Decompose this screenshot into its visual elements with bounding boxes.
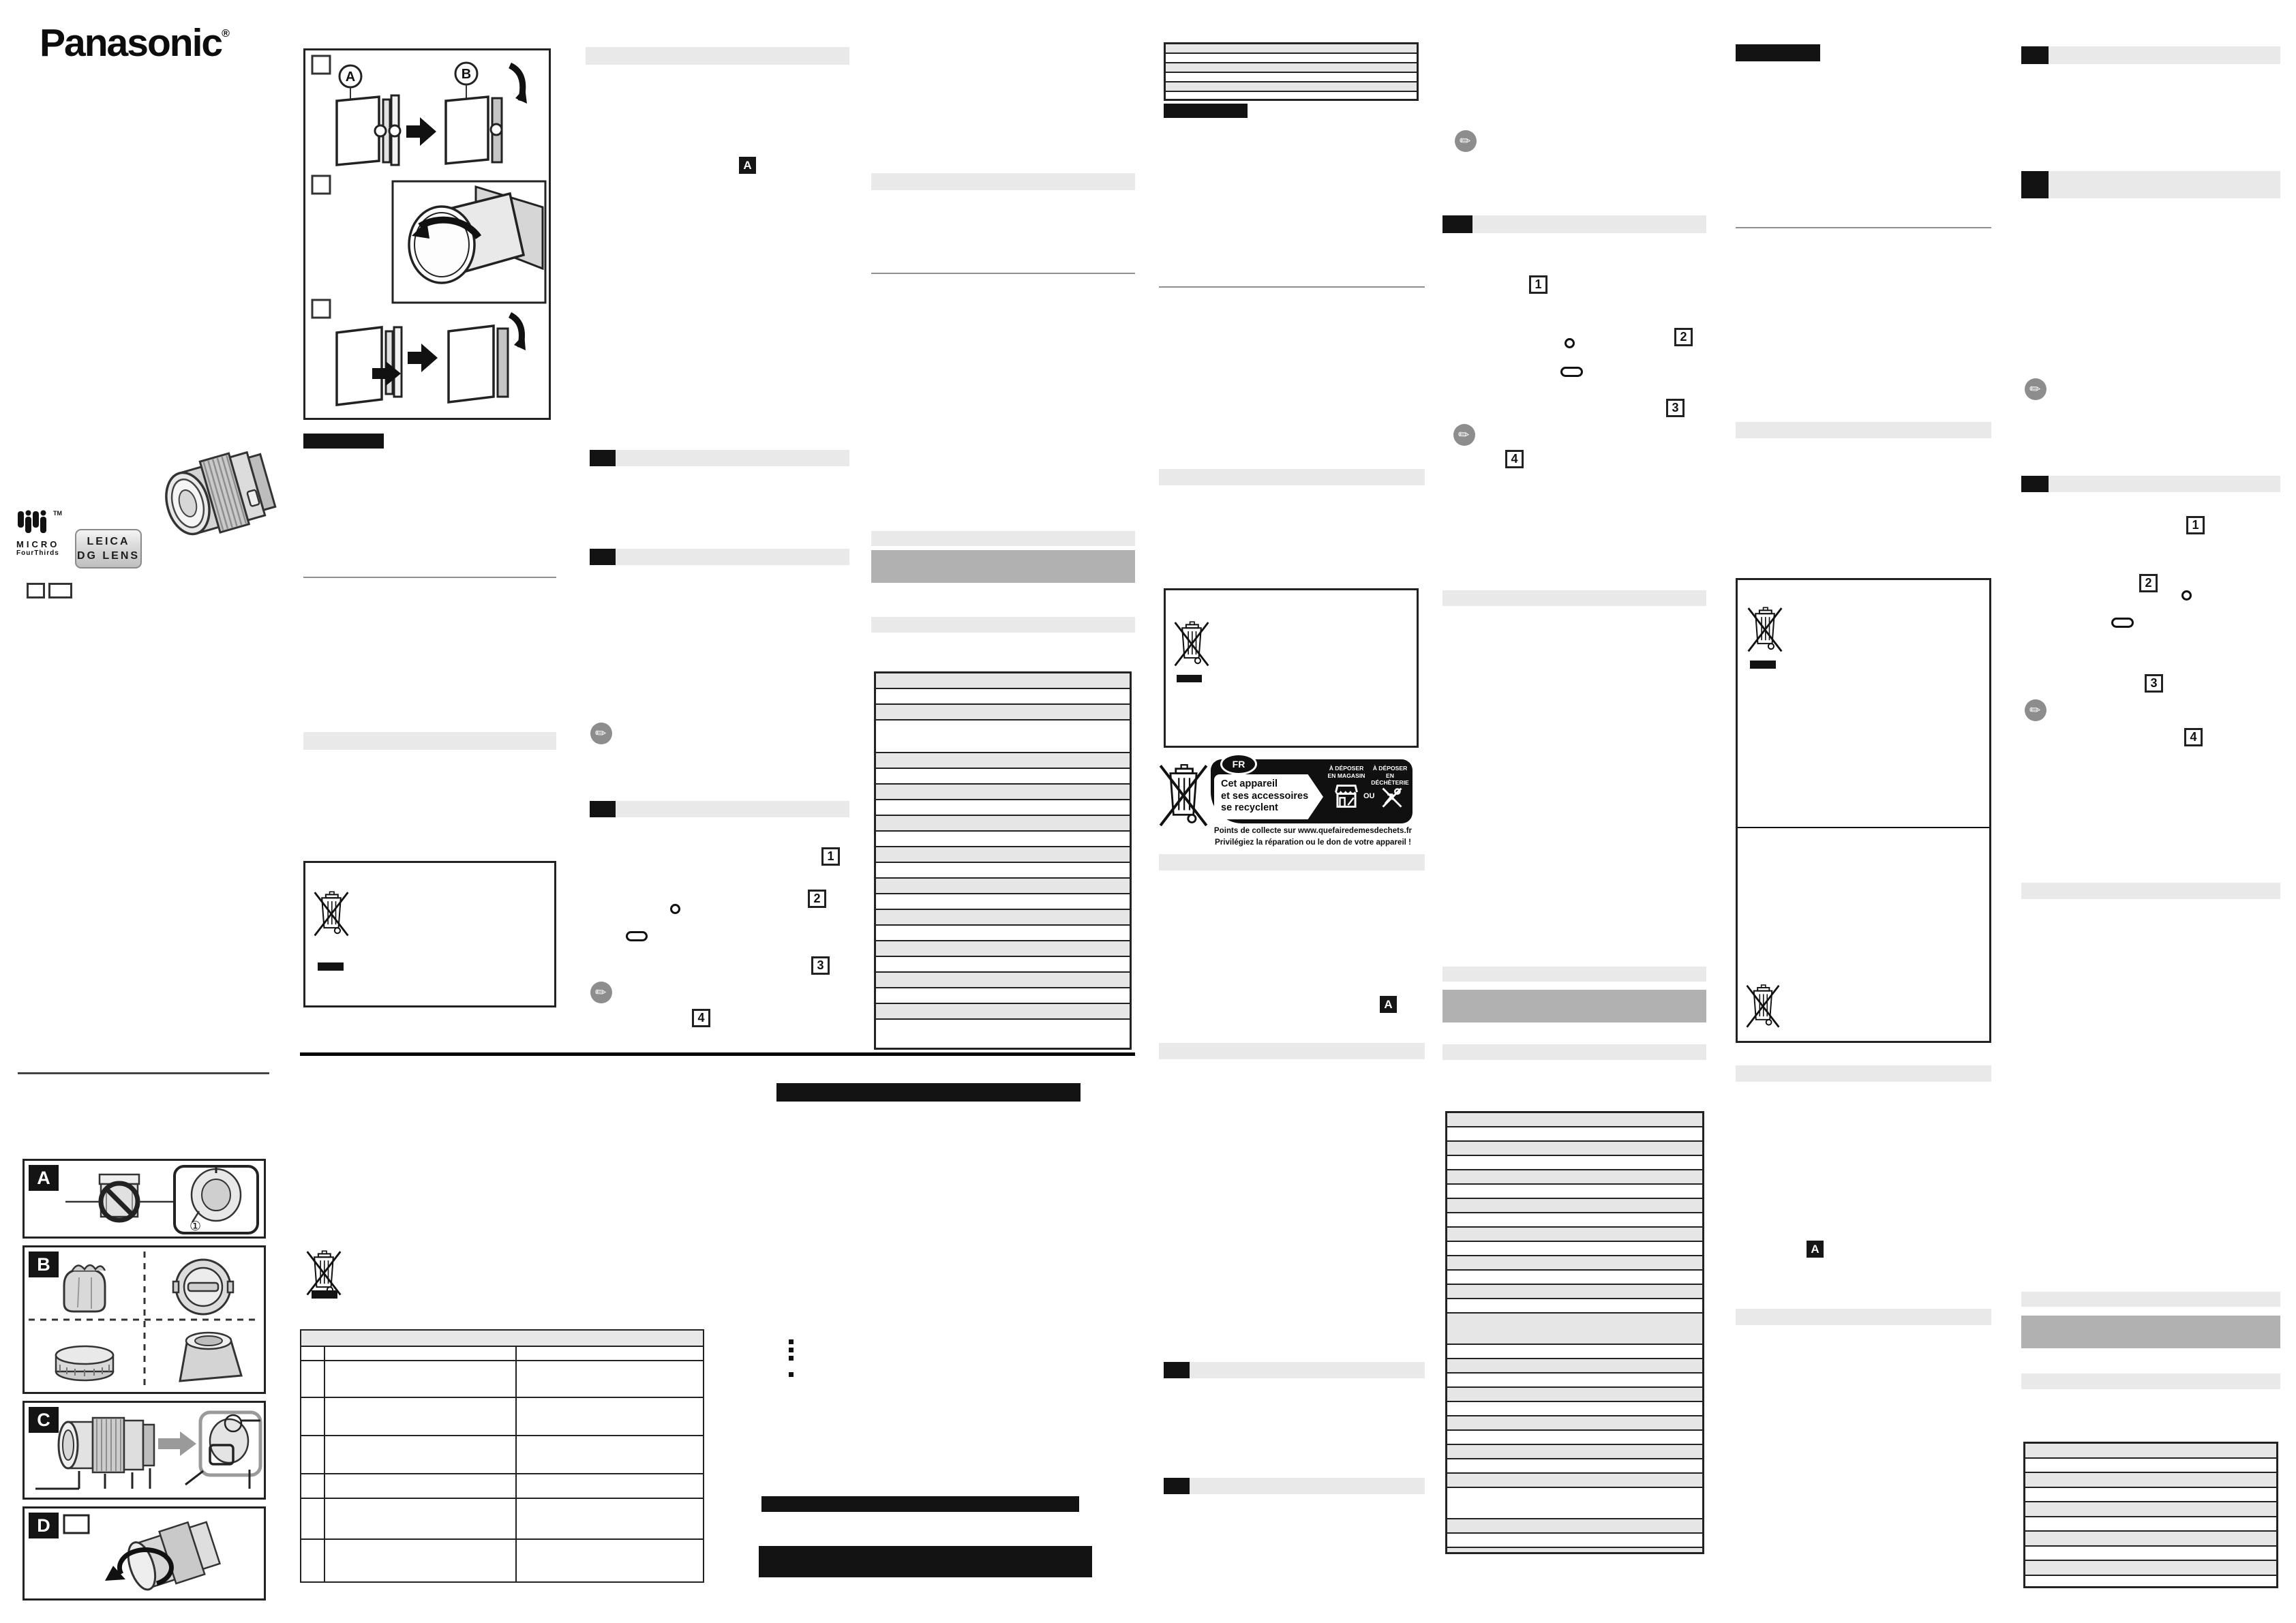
redacted-subheading-col4 xyxy=(871,550,1135,583)
redacted-heading-col8-6 xyxy=(2021,1374,2280,1389)
redacted-heading-col3-3 xyxy=(616,801,849,817)
figure-panel-a: A ① xyxy=(22,1159,266,1239)
troubleshooting-table-body xyxy=(301,1330,704,1582)
step-2-label: 2 xyxy=(1680,330,1687,344)
step-4-label: 4 xyxy=(2190,730,2196,744)
table-row xyxy=(1166,63,1417,73)
micro-fourthirds-mark-icon xyxy=(16,510,53,534)
redacted-heading-col5-4 xyxy=(1190,1362,1425,1378)
table-row xyxy=(1447,1170,1702,1185)
figure-ref-b: B xyxy=(462,67,471,82)
mft-micro-text: MICRO xyxy=(16,539,78,549)
divider-line-col2 xyxy=(303,577,556,578)
pencil-glyph: ✎ xyxy=(2026,701,2044,720)
redacted-heading-col5-3 xyxy=(1159,1043,1425,1059)
figure-a-reference: A xyxy=(1807,1241,1824,1258)
table-row xyxy=(2025,1517,2276,1532)
table-row xyxy=(876,1020,1130,1050)
triman-recycle-label: FR Cet appareil et ses accessoires se re… xyxy=(1159,758,1425,847)
dropoff1-line1: À DÉPOSER xyxy=(1324,765,1369,772)
triman-black-panel: FR Cet appareil et ses accessoires se re… xyxy=(1211,759,1413,823)
table-row xyxy=(1447,1416,1702,1431)
table-row xyxy=(2025,1547,2276,1562)
table-row xyxy=(876,832,1130,847)
heading-black-square xyxy=(2021,46,2049,64)
fr-label: FR xyxy=(1233,759,1245,770)
step-1-box: 1 xyxy=(821,847,840,866)
step-3-label: 3 xyxy=(817,958,824,973)
table-row xyxy=(876,988,1130,1004)
triman-fr-tag: FR xyxy=(1220,753,1257,775)
step-1-label: 1 xyxy=(827,849,834,864)
figure-panel-c: C xyxy=(22,1401,266,1500)
note-pencil-icon: ✎ xyxy=(1455,130,1477,152)
triman-claim-bubble: Cet appareil et ses accessoires se recyc… xyxy=(1214,774,1323,819)
brand-name: Panasonic xyxy=(40,21,222,65)
troubleshooting-table xyxy=(300,1329,704,1583)
edition-box-1 xyxy=(27,583,45,598)
table-row xyxy=(876,973,1130,988)
triman-claim-line1: Cet appareil xyxy=(1221,778,1323,791)
step-4-label: 4 xyxy=(1511,452,1517,466)
table-row xyxy=(2025,1444,2276,1459)
table-row xyxy=(2025,1502,2276,1517)
specifications-table-col8 xyxy=(2023,1442,2278,1588)
table-row xyxy=(1447,1299,1702,1314)
table-row xyxy=(1447,1548,1702,1554)
heading-black-square xyxy=(1164,1362,1190,1378)
leica-badge-line2: DG LENS xyxy=(76,549,140,564)
panel-a-label: A xyxy=(29,1165,59,1191)
table-row xyxy=(301,1539,704,1582)
table-row xyxy=(876,816,1130,832)
table-row xyxy=(1447,1285,1702,1299)
manual-page: Panasonic® xyxy=(0,0,2296,1623)
redacted-heading-col8-1 xyxy=(2049,46,2280,64)
table-row xyxy=(1447,1519,1702,1534)
warranty-black-heading-3 xyxy=(759,1546,1092,1577)
weee-bar-mark xyxy=(312,1290,337,1299)
heading-black-square xyxy=(590,549,616,565)
table-row xyxy=(1447,1127,1702,1142)
bullet-dot xyxy=(789,1348,794,1352)
step-4-label: 4 xyxy=(697,1011,704,1025)
warranty-black-heading-1 xyxy=(776,1083,1081,1102)
ref-a-label: A xyxy=(1811,1243,1819,1256)
store-icon xyxy=(1333,783,1359,810)
dechetterie-icon xyxy=(1380,784,1404,810)
table-row xyxy=(876,673,1130,689)
table-row xyxy=(2025,1488,2276,1503)
heading-black-square xyxy=(2021,476,2049,492)
redacted-heading-col6-4 xyxy=(1442,1044,1706,1060)
table-row xyxy=(876,894,1130,910)
note-pencil-icon: ✎ xyxy=(2025,699,2046,721)
focus-switch-pill-icon xyxy=(626,931,648,941)
table-row xyxy=(2025,1532,2276,1547)
bullet-dot xyxy=(789,1356,794,1361)
ref-a-label: A xyxy=(743,159,751,172)
table-row xyxy=(301,1474,704,1498)
redacted-heading-col5-1 xyxy=(1159,469,1425,485)
focus-button-circle-icon xyxy=(2181,590,2192,601)
compliance-table-col5 xyxy=(1164,42,1419,101)
table-row xyxy=(2025,1561,2276,1576)
table-row xyxy=(301,1498,704,1539)
redacted-subheading-col8 xyxy=(2021,1316,2280,1348)
table-row xyxy=(2025,1576,2276,1589)
table-row xyxy=(1166,73,1417,82)
weee-bar-mark xyxy=(1750,661,1776,669)
table-row xyxy=(876,689,1130,705)
pencil-glyph: ✎ xyxy=(2026,380,2044,399)
note-pencil-icon: ✎ xyxy=(1453,424,1475,446)
table-row xyxy=(876,1004,1130,1020)
table-row xyxy=(1447,1242,1702,1256)
weee-note-box-col2 xyxy=(303,861,556,1007)
table-row xyxy=(1166,82,1417,92)
redacted-heading-col2 xyxy=(303,732,556,750)
triman-dropoff1-title: À DÉPOSER EN MAGASIN xyxy=(1324,765,1369,779)
redacted-heading-col8-3 xyxy=(2049,476,2280,492)
triman-claim-line2: et ses accessoires xyxy=(1221,791,1323,803)
figure-a-reference: A xyxy=(739,157,756,174)
table-row xyxy=(1447,1534,1702,1548)
specifications-table-col4 xyxy=(874,671,1132,1050)
step-2-box: 2 xyxy=(1674,328,1693,346)
redacted-heading-col8-5 xyxy=(2021,1292,2280,1307)
table-row xyxy=(876,957,1130,973)
redacted-heading-col4-2 xyxy=(871,617,1135,633)
redacted-heading-col7-1 xyxy=(1736,422,1991,438)
figure-panel-d: D xyxy=(22,1506,266,1601)
divider-line-col4 xyxy=(871,273,1135,274)
figure-ref-a: A xyxy=(346,70,355,85)
table-row xyxy=(876,800,1130,816)
heading-black-square xyxy=(1442,215,1472,233)
table-row xyxy=(1447,1199,1702,1213)
redacted-heading-col3-top xyxy=(586,47,849,65)
step-1-box: 1 xyxy=(1529,275,1547,294)
redacted-heading-col4-1 xyxy=(871,531,1135,546)
redacted-heading-col6-2 xyxy=(1442,590,1706,606)
heading-black-square xyxy=(590,450,616,466)
leica-badge-line1: LEICA xyxy=(76,535,140,549)
divider-line-col5 xyxy=(1159,286,1425,288)
step-1-box: 1 xyxy=(2186,516,2205,534)
triman-info-line2: Privilégiez la réparation ou le don de v… xyxy=(1211,837,1415,849)
dropoff1-line2: EN MAGASIN xyxy=(1324,772,1369,780)
pencil-glyph: ✎ xyxy=(592,724,610,743)
focus-button-circle-icon xyxy=(1565,338,1575,348)
weee-note-box-col5 xyxy=(1164,588,1419,748)
panasonic-logo: Panasonic® xyxy=(40,20,230,65)
weee-bin-icon xyxy=(1174,615,1209,672)
leica-dg-lens-badge: LEICA DG LENS xyxy=(75,529,142,568)
ref-a-label: A xyxy=(1384,998,1392,1012)
table-row xyxy=(1447,1156,1702,1170)
table-row xyxy=(876,785,1130,800)
redacted-heading-col6-3 xyxy=(1442,967,1706,982)
triman-info-line1: Points de collecte sur www.quefairedemes… xyxy=(1211,825,1415,837)
table-row xyxy=(876,769,1130,785)
focus-switch-pill-icon xyxy=(1560,367,1583,377)
table-row xyxy=(1447,1345,1702,1359)
table-row xyxy=(1447,1142,1702,1156)
figure-d-art xyxy=(25,1508,264,1598)
step-2-box: 2 xyxy=(2139,574,2158,592)
table-row xyxy=(876,910,1130,926)
micro-fourthirds-logo: TM MICRO FourThirds xyxy=(16,510,78,557)
figure-a-art: ① xyxy=(59,1162,263,1237)
table-row xyxy=(876,721,1130,753)
table-row xyxy=(1447,1113,1702,1127)
redacted-subheading-col6 xyxy=(1442,990,1706,1022)
table-row xyxy=(1447,1488,1702,1519)
redacted-heading-col7-3 xyxy=(1736,1309,1991,1325)
step-4-box: 4 xyxy=(2184,728,2203,746)
weee-bin-icon xyxy=(1746,978,1780,1033)
note-pencil-icon: ✎ xyxy=(590,982,612,1003)
specifications-table-col6 xyxy=(1445,1111,1704,1554)
redacted-heading-col7-2 xyxy=(1736,1065,1991,1082)
pencil-glyph: ✎ xyxy=(1455,425,1473,444)
section-black-heading-col5 xyxy=(1164,104,1248,118)
table-row xyxy=(876,847,1130,863)
table-row xyxy=(1447,1374,1702,1388)
table-row xyxy=(1166,92,1417,101)
panel-a-letter: A xyxy=(37,1168,50,1189)
table-row xyxy=(301,1436,704,1474)
redacted-heading-col4-top xyxy=(871,173,1135,190)
redacted-heading-col3-1 xyxy=(616,450,849,466)
heading-black-square xyxy=(1164,1478,1190,1494)
callout-one: ① xyxy=(190,1219,201,1234)
step-3-box: 3 xyxy=(2145,674,2163,693)
table-row xyxy=(1447,1359,1702,1374)
weee-box-divider xyxy=(1738,827,1989,828)
table-row xyxy=(1447,1256,1702,1271)
note-pencil-icon: ✎ xyxy=(590,723,612,744)
table-row xyxy=(1166,44,1417,54)
mft-fourthirds-text: FourThirds xyxy=(16,549,78,557)
figure-b-art xyxy=(25,1247,264,1392)
step-1-label: 1 xyxy=(1535,277,1541,292)
step-3-label: 3 xyxy=(1672,401,1678,415)
figure-panel-b: B xyxy=(22,1245,266,1394)
lens-illustration xyxy=(145,436,291,556)
table-row xyxy=(876,863,1130,879)
step-2-box: 2 xyxy=(808,890,826,908)
dropoff2-line1: À DÉPOSER xyxy=(1368,765,1413,772)
divider-line-col7 xyxy=(1736,227,1991,228)
weee-bin-icon xyxy=(1159,762,1208,828)
step-3-label: 3 xyxy=(2150,676,2157,691)
weee-bar-mark xyxy=(1177,675,1202,682)
table-row xyxy=(1447,1445,1702,1459)
table-row xyxy=(1447,1271,1702,1285)
table-row xyxy=(876,705,1130,721)
weee-note-box-col7 xyxy=(1736,578,1991,1043)
warranty-black-heading-2 xyxy=(761,1496,1079,1512)
redacted-heading-col5-5 xyxy=(1190,1478,1425,1494)
focus-switch-pill-icon xyxy=(2111,618,2134,628)
triman-or-label: OU xyxy=(1363,792,1375,800)
table-row xyxy=(1447,1459,1702,1474)
tm-mark: TM xyxy=(53,510,62,517)
table-row xyxy=(1447,1388,1702,1402)
step-4-box: 4 xyxy=(692,1009,710,1027)
table-row xyxy=(876,879,1130,894)
weee-bin-icon xyxy=(314,885,349,942)
table-row xyxy=(876,753,1130,769)
table-row xyxy=(876,926,1130,941)
step-2-label: 2 xyxy=(2145,576,2151,590)
edition-box-2 xyxy=(48,583,72,598)
table-row xyxy=(301,1397,704,1436)
heading-black-square xyxy=(2021,171,2049,198)
table-row xyxy=(876,941,1130,957)
redacted-heading-col8-2 xyxy=(2049,171,2280,198)
hood-attachment-diagram: A B xyxy=(305,50,549,418)
table-row xyxy=(1447,1213,1702,1228)
table-row xyxy=(2025,1459,2276,1474)
left-rule xyxy=(18,1072,269,1074)
registered-mark: ® xyxy=(222,28,230,40)
bullet-dot xyxy=(789,1339,794,1344)
step-3-box: 3 xyxy=(811,956,830,975)
redacted-heading-col5-2 xyxy=(1159,854,1425,870)
note-pencil-icon: ✎ xyxy=(2025,378,2046,400)
redacted-heading-col8-4 xyxy=(2021,883,2280,899)
pencil-glyph: ✎ xyxy=(1456,132,1475,151)
table-row xyxy=(1447,1314,1702,1345)
table-row xyxy=(1447,1431,1702,1445)
section-black-heading-col2 xyxy=(303,434,384,449)
focus-button-circle-icon xyxy=(670,904,680,914)
pencil-glyph: ✎ xyxy=(592,983,610,1002)
bullet-dot xyxy=(789,1372,794,1377)
weee-bin-icon xyxy=(1747,601,1783,658)
step-3-box: 3 xyxy=(1666,399,1685,417)
step-1-label: 1 xyxy=(2192,518,2199,532)
hood-attachment-figure: A B xyxy=(303,48,551,420)
weee-bar-mark xyxy=(318,962,344,971)
step-4-box: 4 xyxy=(1505,450,1524,468)
table-row xyxy=(301,1361,704,1397)
table-row xyxy=(2025,1473,2276,1488)
figure-c-art xyxy=(25,1403,264,1498)
section-black-heading-col7 xyxy=(1736,44,1820,61)
redacted-heading-col3-2 xyxy=(616,549,849,565)
table-row xyxy=(1447,1402,1702,1416)
triman-claim-line3: se recyclent xyxy=(1221,802,1323,815)
triman-info-text: Points de collecte sur www.quefairedemes… xyxy=(1211,825,1415,849)
figure-a-reference: A xyxy=(1380,996,1397,1013)
page-section-divider xyxy=(300,1052,1135,1056)
table-row xyxy=(1447,1474,1702,1488)
step-2-label: 2 xyxy=(813,892,820,906)
redacted-heading-col6-1 xyxy=(1472,215,1706,233)
table-row xyxy=(1447,1185,1702,1199)
table-row xyxy=(1166,54,1417,63)
heading-black-square xyxy=(590,801,616,817)
table-row xyxy=(1447,1228,1702,1242)
